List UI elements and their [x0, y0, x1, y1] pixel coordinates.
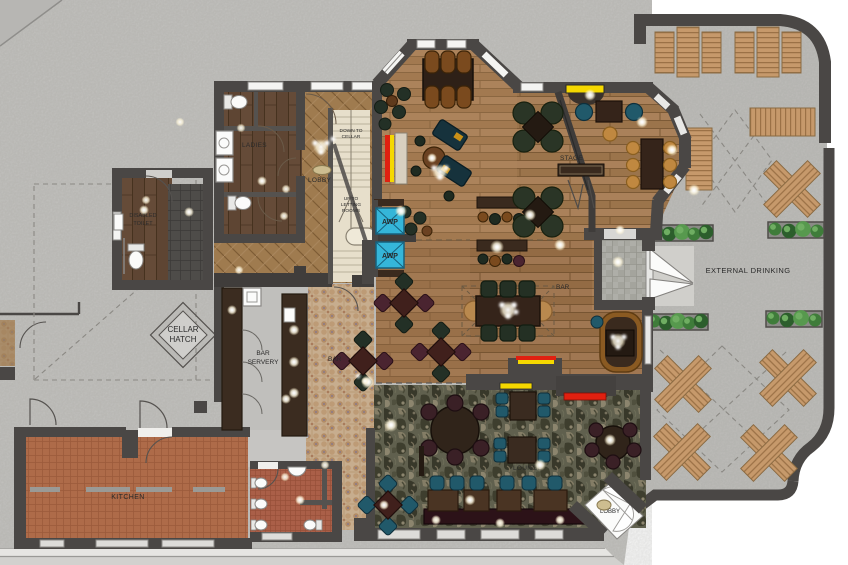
svg-text:EXTERNAL DRINKING: EXTERNAL DRINKING: [706, 266, 791, 275]
svg-text:TOILET: TOILET: [133, 221, 153, 227]
svg-text:CELLAR: CELLAR: [167, 325, 198, 334]
svg-text:STAGE: STAGE: [560, 155, 583, 162]
svg-text:CELLAR: CELLAR: [342, 134, 361, 140]
svg-text:SERVERY: SERVERY: [248, 359, 279, 366]
svg-text:BAR: BAR: [256, 350, 270, 357]
svg-text:DOWN TO: DOWN TO: [339, 128, 362, 134]
svg-text:HATCH: HATCH: [170, 335, 197, 344]
svg-text:LETTING: LETTING: [341, 202, 362, 208]
svg-text:ROOMS: ROOMS: [342, 208, 360, 214]
svg-text:LADIES: LADIES: [242, 142, 267, 149]
svg-text:BAR: BAR: [556, 284, 570, 291]
svg-text:AWP: AWP: [382, 253, 398, 260]
svg-text:BAR: BAR: [328, 356, 342, 363]
svg-text:LOBBY: LOBBY: [308, 177, 332, 184]
svg-text:UP TO: UP TO: [344, 196, 359, 202]
svg-text:AWP: AWP: [382, 219, 398, 226]
svg-text:KITCHEN: KITCHEN: [111, 494, 145, 501]
